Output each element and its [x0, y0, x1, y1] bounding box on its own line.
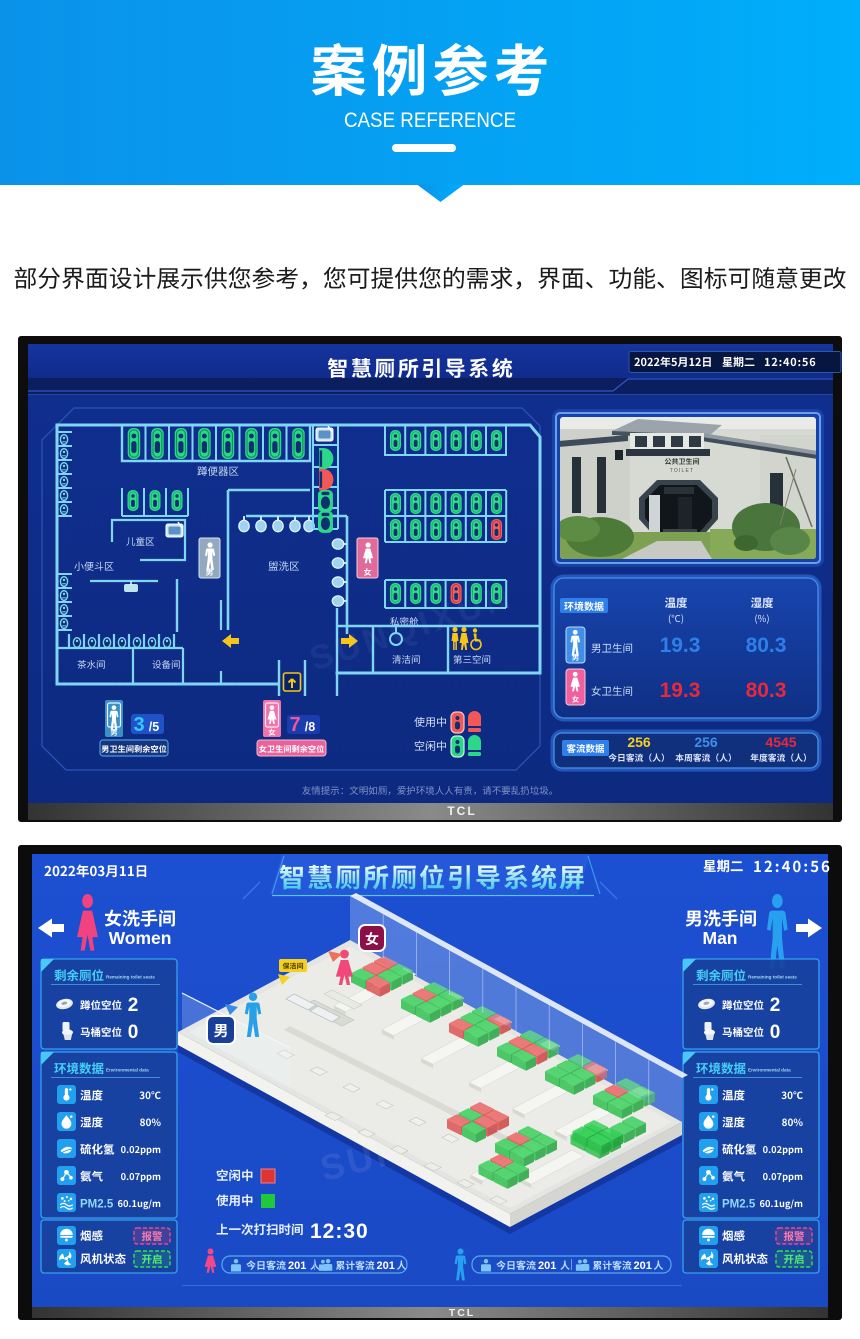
svg-text:0: 0: [770, 1022, 781, 1043]
svg-text:Remaining toilet seats: Remaining toilet seats: [748, 975, 797, 980]
svg-text:TCL: TCL: [449, 1307, 475, 1319]
svg-text:4545: 4545: [765, 734, 796, 750]
svg-text:Man: Man: [703, 928, 738, 948]
svg-text:/5: /5: [149, 720, 159, 734]
svg-text:PM2.5: PM2.5: [722, 1199, 756, 1211]
svg-text:201: 201: [377, 1260, 395, 1272]
svg-text:80.3: 80.3: [746, 679, 787, 702]
svg-text:12:30: 12:30: [310, 1220, 369, 1243]
svg-text:201: 201: [538, 1260, 556, 1272]
svg-text:PM2.5: PM2.5: [80, 1199, 114, 1211]
svg-text:19.3: 19.3: [660, 679, 701, 702]
svg-text:201: 201: [288, 1260, 306, 1272]
svg-text:19.3: 19.3: [660, 634, 701, 657]
svg-text:3: 3: [133, 714, 144, 736]
svg-text:TCL: TCL: [447, 804, 476, 818]
svg-text:/8: /8: [305, 720, 315, 734]
svg-text:TOILET: TOILET: [670, 468, 695, 474]
svg-text:Women: Women: [109, 928, 172, 948]
svg-text:Remaining toilet seats: Remaining toilet seats: [106, 975, 155, 980]
svg-text:256: 256: [627, 734, 651, 750]
svg-text:80.3: 80.3: [746, 634, 787, 657]
svg-text:201: 201: [634, 1260, 652, 1272]
svg-text:0: 0: [128, 1022, 139, 1043]
svg-text:Environmental data: Environmental data: [748, 1068, 791, 1073]
svg-text:7: 7: [289, 714, 300, 736]
svg-text:2: 2: [770, 995, 781, 1016]
svg-text:Environmental data: Environmental data: [106, 1068, 149, 1073]
svg-text:256: 256: [694, 734, 718, 750]
svg-text:2: 2: [128, 995, 139, 1016]
svg-text:CASE REFERENCE: CASE REFERENCE: [344, 108, 516, 132]
